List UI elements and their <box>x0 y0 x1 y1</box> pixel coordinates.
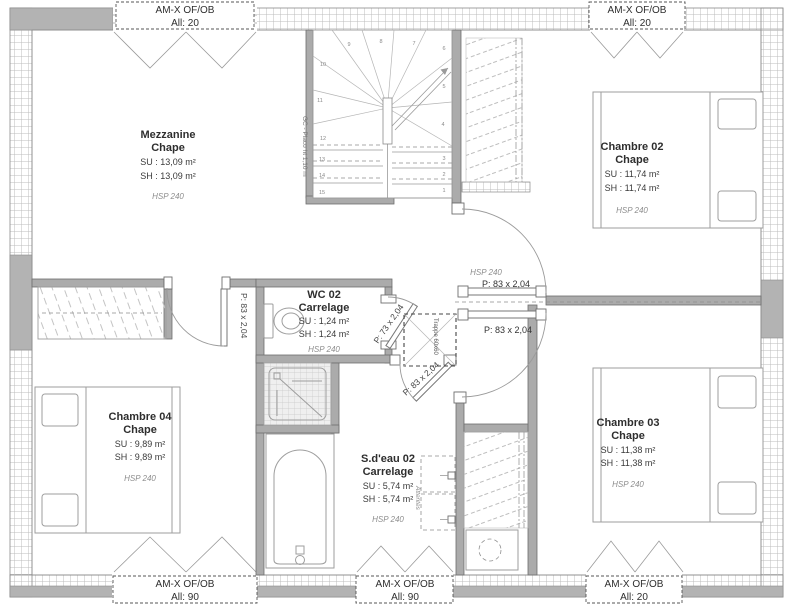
window-label: All: 20 <box>620 592 648 603</box>
door-hinge-post <box>536 309 546 320</box>
casement-symbol <box>587 541 683 572</box>
closet-chambre02-hatch <box>466 38 522 182</box>
pillow <box>718 99 756 129</box>
window-label: AM-X OF/OB <box>605 579 664 590</box>
water-heater-symbol <box>479 539 501 561</box>
stair-newel-post <box>383 98 392 144</box>
wall-segment <box>546 296 761 305</box>
door-leaf-chambre04 <box>221 289 227 346</box>
step-number: 9 <box>347 42 350 48</box>
door-jamb <box>222 277 230 289</box>
room-sh: SH : 9,89 m² <box>115 452 166 462</box>
fixtures: Attentes Trappe 60x60 <box>264 304 456 568</box>
wall-segment <box>456 392 464 575</box>
room-sh: SH : 13,09 m² <box>140 171 196 181</box>
room-finish: Chape <box>123 424 157 436</box>
room-name: WC 02 <box>307 289 341 301</box>
room-label-mezzanine: Mezzanine Chape SU : 13,09 m² SH : 13,09… <box>140 129 196 201</box>
step-number: 3 <box>442 156 445 162</box>
floor-plan-page: AM-X OF/OB All: 20 AM-X OF/OB All: 20 AM… <box>0 0 793 606</box>
window-label: AM-X OF/OB <box>608 5 667 16</box>
casement-symbol <box>114 32 256 68</box>
wall-segment <box>32 279 164 287</box>
room-name: Chambre 02 <box>601 141 664 153</box>
room-hsp: HSP 240 <box>616 206 648 215</box>
step-number: 11 <box>317 98 323 104</box>
room-finish: Chape <box>611 430 645 442</box>
window-label: All: 20 <box>623 18 651 29</box>
wall-segment <box>464 424 532 432</box>
wall-segment <box>256 279 392 287</box>
pillow <box>718 191 756 221</box>
wall-segment <box>256 425 339 433</box>
door-jamb <box>390 355 400 365</box>
plumbing-stub <box>448 516 455 523</box>
step-number: 14 <box>319 173 325 179</box>
step-number: 2 <box>442 172 445 178</box>
wall-segment <box>331 363 339 433</box>
water-heater-space <box>466 530 518 570</box>
room-finish: Chape <box>615 154 649 166</box>
room-name: Mezzanine <box>140 129 195 141</box>
door-swing-chambre04 <box>167 288 224 346</box>
wall-solid-segment <box>761 280 783 338</box>
room-finish: Chape <box>151 142 185 154</box>
window-label: All: 90 <box>391 592 419 603</box>
room-finish: Carrelage <box>363 466 414 478</box>
window-label: AM-X OF/OB <box>156 5 215 16</box>
door-jamb <box>381 295 396 303</box>
door-hinge-post <box>458 286 468 297</box>
door-hinge-post <box>458 309 468 320</box>
window-label: All: 90 <box>171 592 199 603</box>
room-name: Chambre 03 <box>597 417 660 429</box>
step-number: 6 <box>442 46 445 52</box>
wall-segment <box>528 305 537 575</box>
room-hsp: HSP 240 <box>372 515 404 524</box>
degagement-hsp-label: HSP 240 <box>470 268 502 277</box>
door-label-chambre03: P: 83 x 2,04 <box>484 325 532 335</box>
room-name: S.d'eau 02 <box>361 453 415 465</box>
room-su: SU : 5,74 m² <box>363 481 414 491</box>
step-number: 13 <box>319 157 325 163</box>
room-label-sdeau02: S.d'eau 02 Carrelage SU : 5,74 m² SH : 5… <box>361 453 415 524</box>
window-label: All: 20 <box>171 18 199 29</box>
step-number: 12 <box>320 136 326 142</box>
pillow <box>42 494 78 526</box>
step-number: 1 <box>442 188 445 194</box>
casement-symbol <box>114 537 256 572</box>
step-number: 5 <box>442 84 445 90</box>
room-su: SU : 9,89 m² <box>115 439 166 449</box>
door-strike-post <box>452 203 464 214</box>
room-sh: SH : 11,74 m² <box>605 183 660 193</box>
room-su: SU : 1,24 m² <box>299 316 350 326</box>
bathtub <box>266 434 334 568</box>
door-jamb <box>164 277 172 289</box>
pillow <box>42 394 78 426</box>
pillow <box>718 482 756 514</box>
step-number: 10 <box>320 62 326 68</box>
stair-guard-note: GC - Placo ht 1,10 m <box>301 116 308 177</box>
room-su: SU : 11,74 m² <box>605 169 660 179</box>
wall-segment <box>230 279 256 287</box>
step-number: 8 <box>379 39 382 45</box>
wall-segment <box>452 30 461 203</box>
pillow <box>718 376 756 408</box>
window-label: AM-X OF/OB <box>156 579 215 590</box>
room-su: SU : 11,38 m² <box>601 445 656 455</box>
step-number: 7 <box>412 41 415 47</box>
trappe-label: Trappe 60x60 <box>432 318 438 355</box>
door-leaf-chambre03 <box>466 311 538 318</box>
attentes-zone <box>421 494 455 530</box>
room-sh: SH : 1,24 m² <box>299 329 350 339</box>
floor-plan-drawing: AM-X OF/OB All: 20 AM-X OF/OB All: 20 AM… <box>0 0 793 606</box>
wall-segment <box>256 355 392 363</box>
staircase: 1 2 3 4 5 6 7 8 9 10 11 12 13 14 15 GC -… <box>301 30 452 198</box>
attentes-label: Attentes <box>414 485 421 511</box>
toilet-tank <box>264 304 273 338</box>
closet-sdeau-hatch <box>464 432 528 528</box>
door-label-chambre02: P: 83 x 2,04 <box>482 279 530 289</box>
door-label-chambre04: P: 83 x 2,04 <box>239 293 249 339</box>
room-hsp: HSP 240 <box>308 345 340 354</box>
room-hsp: HSP 240 <box>124 474 156 483</box>
room-finish: Carrelage <box>299 302 350 314</box>
trappe-diagonals <box>404 314 456 366</box>
step-number: 15 <box>319 190 325 196</box>
casement-symbol <box>357 546 453 572</box>
window-label: AM-X OF/OB <box>376 579 435 590</box>
step-number: 4 <box>441 122 444 128</box>
wall-segment <box>462 182 530 192</box>
room-name: Chambre 04 <box>109 411 173 423</box>
plumbing-stub <box>448 472 455 479</box>
wall-solid-segment <box>10 255 32 350</box>
room-sh: SH : 5,74 m² <box>363 494 414 504</box>
room-label-wc02: WC 02 Carrelage SU : 1,24 m² SH : 1,24 m… <box>299 289 350 354</box>
room-hsp: HSP 240 <box>152 192 184 201</box>
wall-solid-segment <box>10 8 113 30</box>
room-sh: SH : 11,38 m² <box>601 458 656 468</box>
room-su: SU : 13,09 m² <box>140 157 196 167</box>
door-hinge-post <box>536 286 546 297</box>
stair-boundary <box>313 30 452 198</box>
door-leaf-chambre02 <box>466 288 538 295</box>
door-strike-post <box>454 392 466 403</box>
room-hsp: HSP 240 <box>612 480 644 489</box>
casement-symbol <box>591 32 683 58</box>
